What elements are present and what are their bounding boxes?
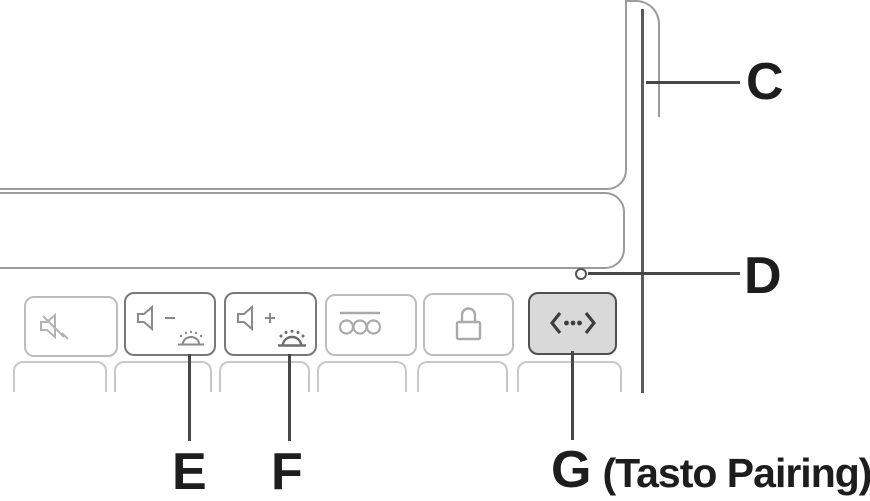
speaker-minus-icon [136, 305, 178, 331]
callout-label-g-note: (Tasto Pairing) [602, 450, 870, 496]
partial-key [13, 361, 107, 392]
callout-label-d: D [744, 250, 781, 302]
partial-key [517, 361, 622, 392]
three-circles-overline-icon [338, 310, 384, 338]
diagram-stage: ts [0, 0, 870, 501]
key-pairing [528, 292, 617, 355]
callout-label-g: G [551, 441, 590, 499]
key-battery-check [325, 294, 417, 356]
partial-key [219, 361, 310, 392]
key-volume-down-backlight-dim [124, 292, 216, 356]
callout-label-g-group: G(Tasto Pairing) [551, 444, 870, 496]
callout-label-f: F [271, 446, 302, 498]
partial-key [317, 361, 407, 392]
status-led [575, 268, 587, 280]
leader-line-d [588, 272, 740, 275]
leader-line-c [646, 81, 740, 84]
leader-line-e [188, 354, 191, 441]
speaker-mute-icon [38, 311, 72, 341]
key-mute [24, 296, 118, 357]
leader-line-g [571, 351, 574, 440]
backlight-dim-icon [177, 330, 205, 347]
callout-label-e: E [172, 446, 206, 498]
partial-key [417, 361, 508, 392]
pairing-chevron-dots-icon [550, 311, 596, 335]
device-side-edge [641, 9, 644, 393]
key-volume-up-backlight-bright [224, 292, 317, 356]
leader-line-f [288, 354, 291, 441]
callout-label-c: C [746, 56, 783, 108]
device-hinge-strip [0, 192, 625, 269]
second-key-row [0, 361, 645, 392]
partial-key [114, 361, 212, 392]
device-top-panel [0, 0, 627, 190]
speaker-plus-icon [236, 305, 278, 331]
key-lock [423, 293, 514, 356]
backlight-bright-icon [277, 329, 307, 348]
padlock-icon [453, 305, 483, 343]
